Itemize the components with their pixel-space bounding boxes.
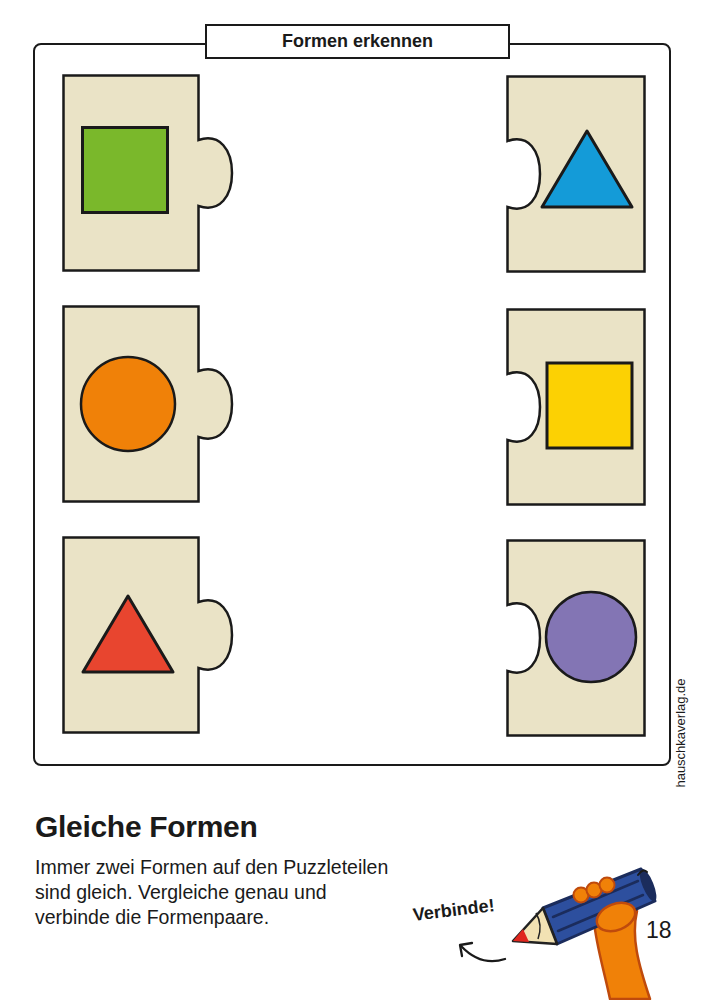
orange-circle-shape bbox=[81, 357, 175, 451]
green-square-shape bbox=[83, 128, 168, 213]
puzzle-piece-purple-circle bbox=[506, 539, 646, 737]
puzzle-piece-orange-circle bbox=[62, 305, 234, 503]
yellow-square-shape bbox=[547, 363, 632, 448]
puzzle-piece-green-square bbox=[62, 74, 234, 272]
section-heading: Gleiche Formen bbox=[35, 810, 258, 844]
puzzle-piece-red-triangle bbox=[62, 536, 234, 734]
finger-3 bbox=[600, 878, 615, 893]
page-title: Formen erkennen bbox=[282, 31, 433, 52]
purple-circle-shape bbox=[546, 592, 636, 682]
puzzle-piece-blue-triangle bbox=[506, 75, 646, 273]
worksheet-page: Formen erkennen Gleiche Formen Immer zwe… bbox=[0, 0, 705, 1000]
puzzle-pieces-layer bbox=[0, 0, 705, 766]
puzzle-piece-yellow-square bbox=[506, 308, 646, 506]
page-number: 18 bbox=[646, 917, 672, 944]
page-title-box: Formen erkennen bbox=[205, 24, 510, 59]
instructions-text: Immer zwei Formen auf den Puzzleteilen s… bbox=[35, 855, 415, 930]
